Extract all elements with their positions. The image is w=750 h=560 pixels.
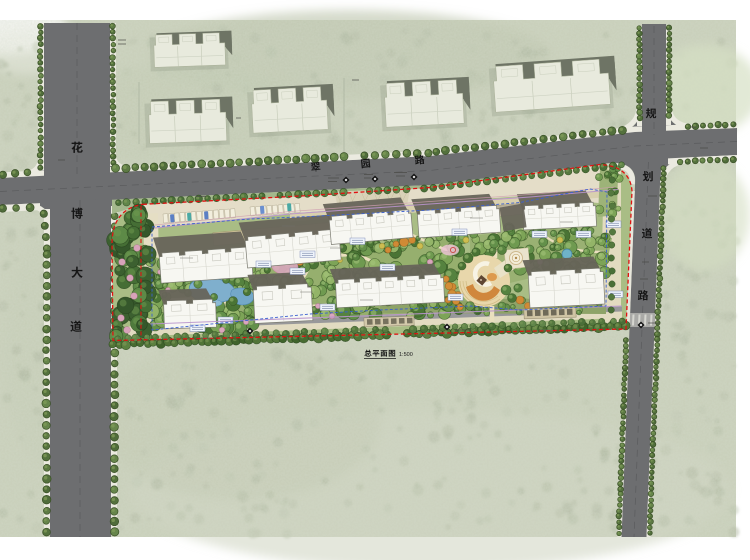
svg-text:1:500: 1:500: [399, 352, 413, 358]
